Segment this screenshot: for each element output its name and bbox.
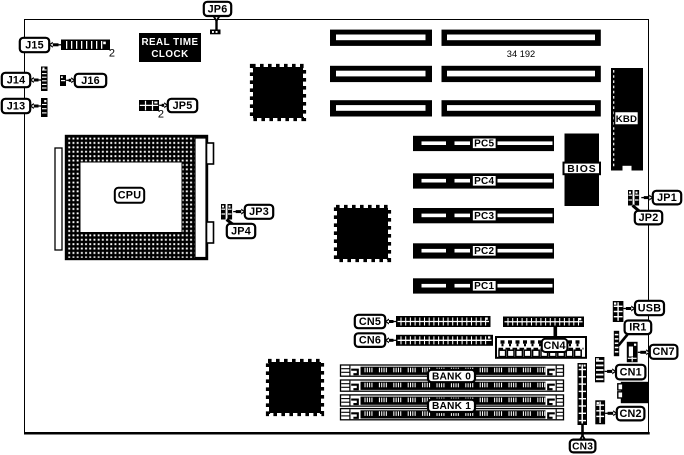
svg-text:CN1: CN1 xyxy=(620,367,642,379)
svg-text:PC3: PC3 xyxy=(474,211,494,222)
svg-text:CN4: CN4 xyxy=(543,340,565,352)
svg-text:2: 2 xyxy=(158,109,164,121)
svg-text:REAL TIME: REAL TIME xyxy=(141,37,198,48)
svg-text:PC2: PC2 xyxy=(474,246,494,257)
svg-text:2: 2 xyxy=(109,48,115,60)
svg-text:J16: J16 xyxy=(81,75,100,87)
svg-text:PC5: PC5 xyxy=(474,139,494,150)
svg-text:IR1: IR1 xyxy=(629,322,646,334)
svg-text:PC1: PC1 xyxy=(474,281,494,292)
svg-text:JP4: JP4 xyxy=(231,225,251,237)
svg-text:BIOS: BIOS xyxy=(567,164,596,175)
svg-text:CN5: CN5 xyxy=(359,316,381,328)
svg-text:CPU: CPU xyxy=(118,190,141,202)
svg-text:KBD: KBD xyxy=(616,114,637,125)
svg-text:USB: USB xyxy=(638,302,661,314)
svg-text:BANK 1: BANK 1 xyxy=(432,401,471,412)
svg-text:CN6: CN6 xyxy=(359,335,381,347)
svg-text:J15: J15 xyxy=(25,39,44,51)
svg-text:CN7: CN7 xyxy=(652,346,674,358)
svg-text:J13: J13 xyxy=(7,100,26,112)
svg-text:JP5: JP5 xyxy=(173,100,193,112)
svg-text:CN2: CN2 xyxy=(619,408,641,420)
svg-text:CLOCK: CLOCK xyxy=(151,49,188,60)
svg-text:PC4: PC4 xyxy=(474,176,494,187)
svg-text:JP1: JP1 xyxy=(657,192,677,204)
svg-text:J14: J14 xyxy=(7,74,26,86)
svg-text:CN3: CN3 xyxy=(572,441,593,452)
svg-text:JP6: JP6 xyxy=(208,3,228,15)
svg-text:BANK 0: BANK 0 xyxy=(432,371,471,382)
svg-text:JP3: JP3 xyxy=(249,206,269,218)
svg-text:JP2: JP2 xyxy=(639,212,659,224)
svg-text:34 192: 34 192 xyxy=(507,49,535,59)
